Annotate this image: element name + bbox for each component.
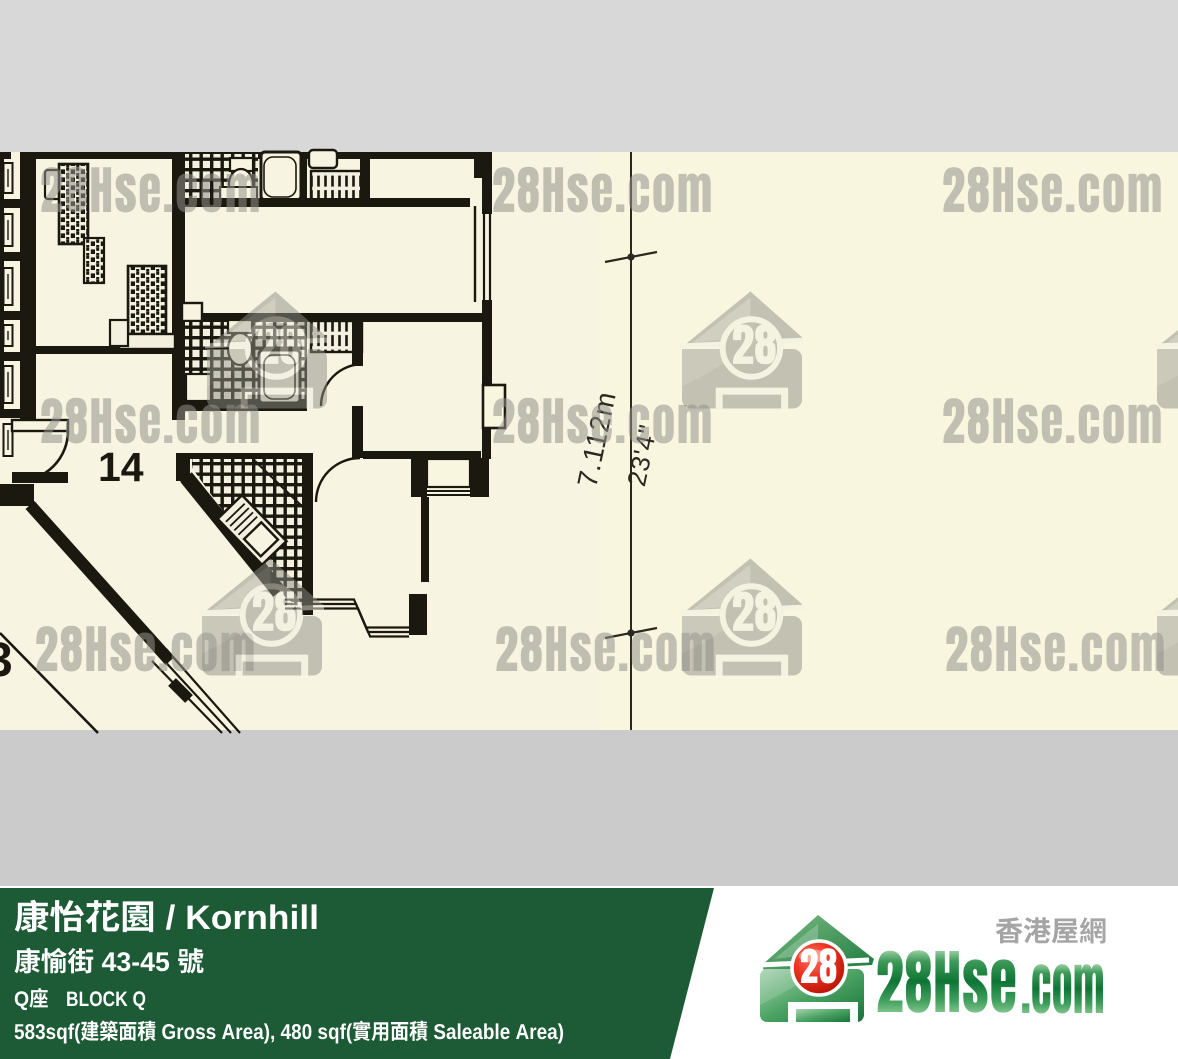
svg-text:3: 3 (0, 634, 13, 687)
svg-text:14: 14 (98, 444, 144, 490)
